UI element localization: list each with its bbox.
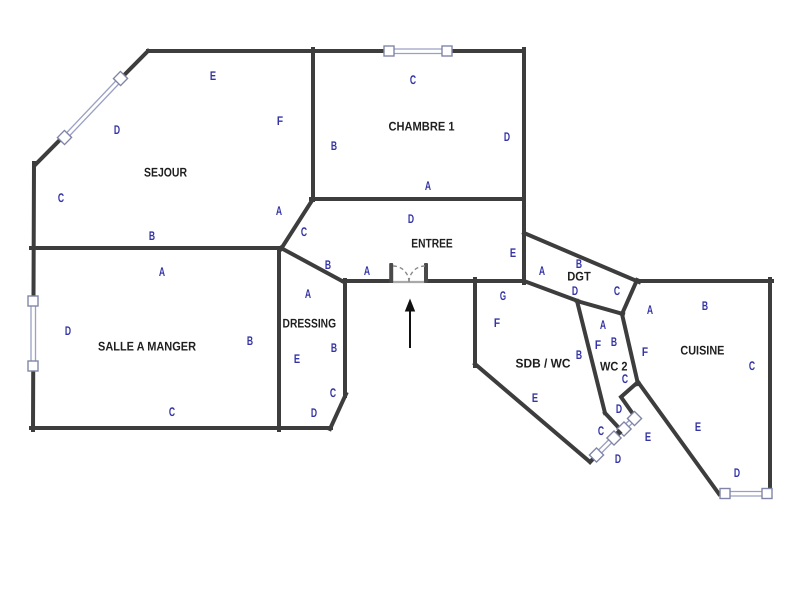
svg-text:C: C (598, 424, 604, 438)
svg-text:C: C (410, 73, 416, 87)
svg-text:D: D (114, 123, 120, 137)
svg-text:C: C (749, 359, 755, 373)
svg-text:DRESSING: DRESSING (283, 317, 337, 331)
svg-text:A: A (425, 179, 431, 193)
svg-text:D: D (408, 212, 414, 226)
svg-text:D: D (65, 324, 71, 338)
svg-text:A: A (305, 287, 311, 301)
svg-text:E: E (210, 69, 216, 83)
svg-text:E: E (510, 246, 516, 260)
svg-text:E: E (294, 352, 300, 366)
svg-text:C: C (58, 191, 64, 205)
svg-text:B: B (331, 139, 337, 153)
svg-text:F: F (494, 316, 500, 330)
svg-text:CHAMBRE 1: CHAMBRE 1 (389, 120, 455, 134)
svg-text:C: C (169, 405, 175, 419)
svg-text:B: B (611, 335, 617, 349)
svg-text:F: F (277, 114, 283, 128)
svg-text:C: C (301, 225, 307, 239)
svg-text:D: D (615, 452, 621, 466)
svg-text:A: A (276, 204, 282, 218)
svg-text:B: B (325, 258, 331, 272)
svg-text:B: B (576, 257, 582, 271)
svg-text:A: A (647, 303, 653, 317)
svg-text:D: D (616, 402, 622, 416)
svg-text:A: A (539, 264, 545, 278)
svg-text:SDB / WC: SDB / WC (516, 357, 571, 371)
svg-text:D: D (311, 406, 317, 420)
svg-text:D: D (734, 466, 740, 480)
svg-text:C: C (614, 284, 620, 298)
svg-text:B: B (702, 299, 708, 313)
svg-text:E: E (532, 391, 538, 405)
svg-text:F: F (642, 345, 648, 359)
svg-text:A: A (159, 265, 165, 279)
svg-text:A: A (364, 264, 370, 278)
svg-text:D: D (572, 284, 578, 298)
svg-text:B: B (331, 341, 337, 355)
svg-text:ENTREE: ENTREE (411, 237, 453, 251)
svg-text:B: B (576, 348, 582, 362)
svg-text:SALLE A MANGER: SALLE A MANGER (98, 340, 196, 354)
svg-text:F: F (595, 338, 601, 352)
svg-text:CUISINE: CUISINE (680, 344, 724, 358)
svg-text:DGT: DGT (567, 270, 591, 284)
svg-text:A: A (600, 318, 606, 332)
svg-text:E: E (695, 420, 701, 434)
svg-text:D: D (504, 130, 510, 144)
svg-text:B: B (247, 334, 253, 348)
svg-text:C: C (330, 386, 336, 400)
svg-text:B: B (149, 229, 155, 243)
svg-text:G: G (500, 289, 506, 303)
svg-text:SEJOUR: SEJOUR (144, 166, 187, 180)
svg-text:E: E (645, 430, 651, 444)
svg-text:C: C (622, 372, 628, 386)
